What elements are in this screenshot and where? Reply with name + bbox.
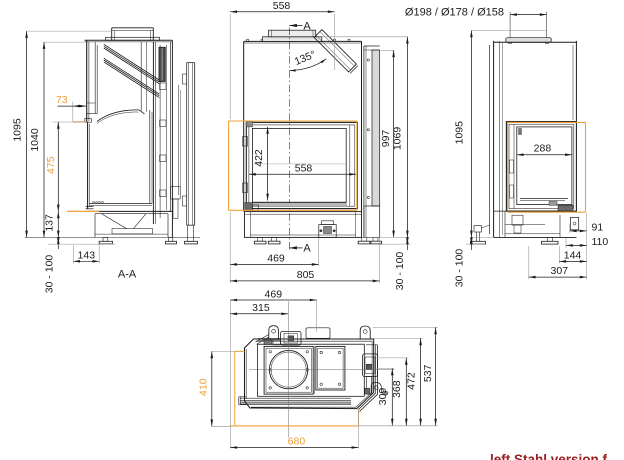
svg-text:1095: 1095 bbox=[11, 118, 23, 142]
svg-text:1069: 1069 bbox=[392, 127, 404, 151]
svg-text:73: 73 bbox=[56, 94, 68, 106]
svg-text:143: 143 bbox=[78, 249, 96, 261]
svg-text:558: 558 bbox=[295, 162, 313, 174]
svg-text:1095: 1095 bbox=[453, 121, 465, 145]
svg-text:410: 410 bbox=[197, 378, 209, 396]
svg-text:Ø198 / Ø178 / Ø158: Ø198 / Ø178 / Ø158 bbox=[405, 6, 504, 18]
svg-text:30 - 100: 30 - 100 bbox=[394, 252, 406, 291]
svg-text:680: 680 bbox=[288, 436, 306, 448]
svg-text:475: 475 bbox=[45, 156, 57, 174]
svg-text:558: 558 bbox=[273, 0, 291, 12]
svg-text:307: 307 bbox=[551, 265, 569, 277]
svg-text:137: 137 bbox=[44, 214, 56, 232]
svg-text:537: 537 bbox=[422, 364, 434, 382]
svg-text:315: 315 bbox=[252, 302, 270, 314]
svg-text:288: 288 bbox=[534, 143, 552, 155]
svg-text:30 - 100: 30 - 100 bbox=[44, 255, 56, 294]
svg-text:A-A: A-A bbox=[118, 269, 137, 281]
svg-text:left Stahl version f: left Stahl version f bbox=[490, 452, 608, 460]
svg-text:805: 805 bbox=[297, 269, 315, 281]
svg-text:30 - 100: 30 - 100 bbox=[453, 249, 465, 288]
svg-text:A: A bbox=[303, 20, 311, 32]
svg-text:309: 309 bbox=[377, 388, 389, 406]
svg-text:472: 472 bbox=[406, 372, 418, 390]
svg-text:997: 997 bbox=[380, 130, 392, 148]
svg-text:422: 422 bbox=[253, 149, 265, 167]
svg-text:469: 469 bbox=[267, 253, 285, 265]
svg-text:144: 144 bbox=[564, 249, 582, 261]
svg-text:368: 368 bbox=[391, 380, 403, 398]
svg-text:91: 91 bbox=[592, 221, 604, 233]
svg-text:110: 110 bbox=[592, 236, 609, 248]
svg-text:1040: 1040 bbox=[29, 128, 41, 152]
svg-text:A: A bbox=[303, 243, 311, 255]
svg-text:469: 469 bbox=[265, 288, 283, 300]
